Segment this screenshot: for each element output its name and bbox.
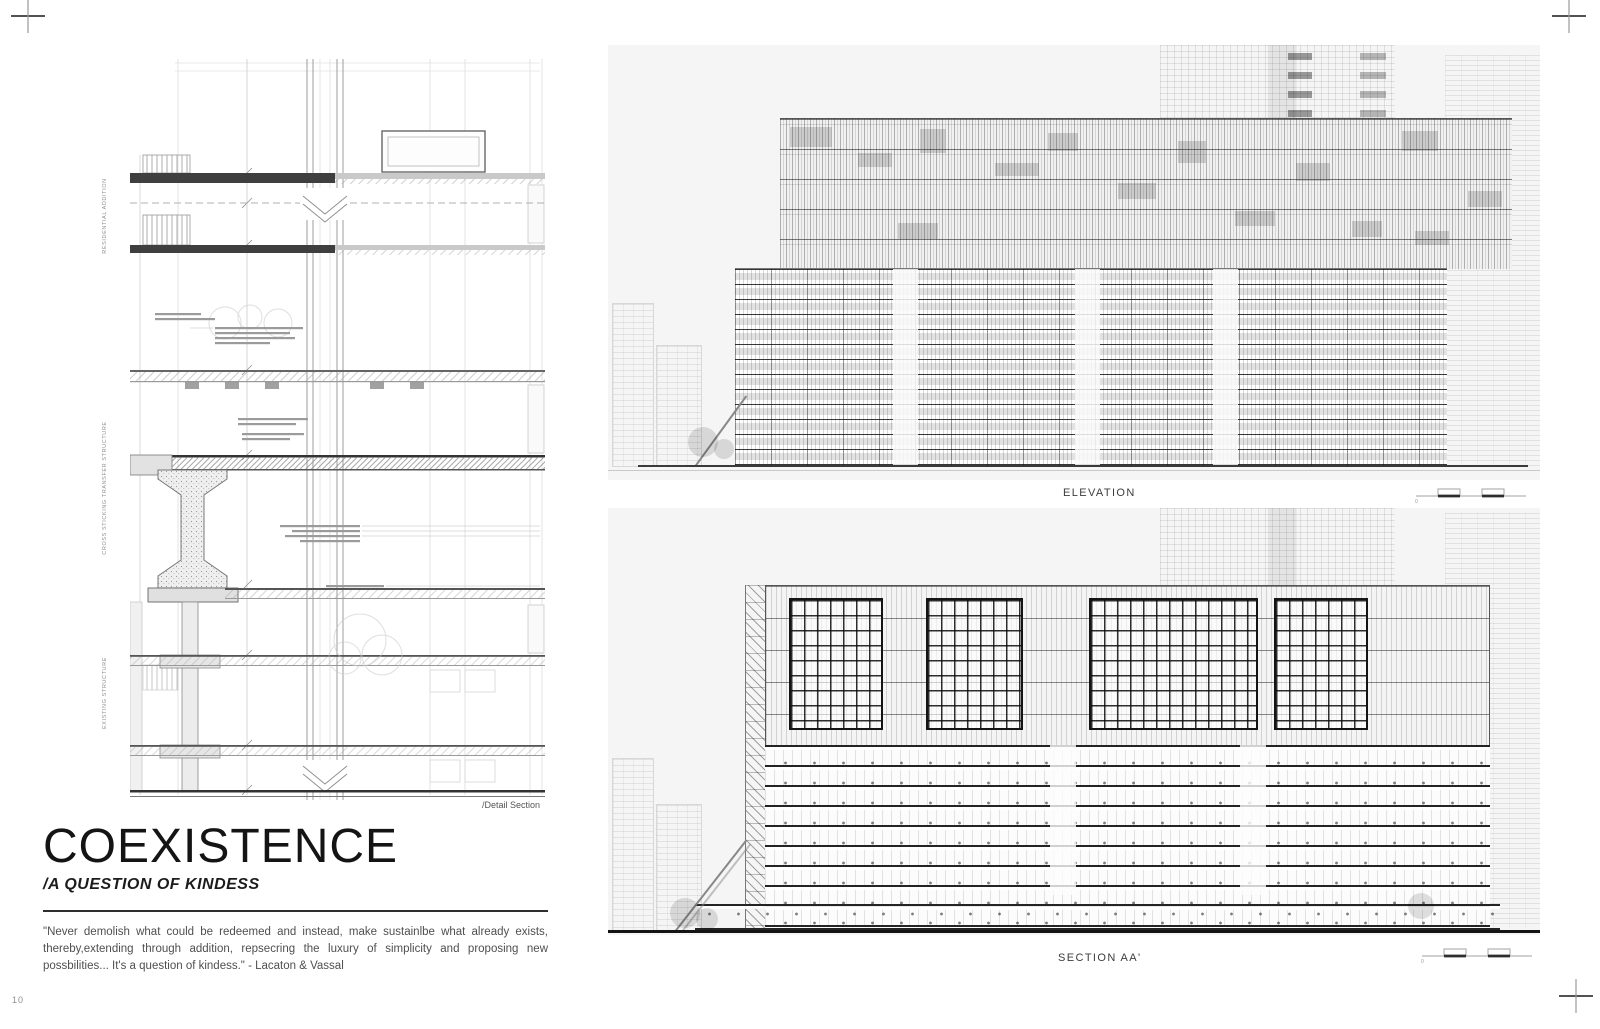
ground-line bbox=[638, 465, 1528, 467]
section-window-grid bbox=[789, 598, 883, 730]
section-addition-mass bbox=[765, 585, 1490, 745]
title-block: COEXISTENCE /A QUESTION OF KINDESS "Neve… bbox=[43, 822, 548, 974]
crop-mark-icon bbox=[1552, 0, 1586, 33]
elevation-void bbox=[893, 269, 918, 466]
section-stair-core bbox=[745, 585, 767, 930]
detail-section-caption: /Detail Section bbox=[450, 800, 540, 810]
portfolio-page: 10 RESIDENTIAL ADDITION CROSS STICKING T… bbox=[0, 0, 1600, 1029]
title-divider bbox=[43, 910, 548, 912]
tree-sketch bbox=[688, 427, 718, 457]
side-label-existing-structure: EXISTING STRUCTURE bbox=[102, 613, 108, 773]
elevation-void bbox=[1213, 269, 1238, 466]
elevation-caption: ELEVATION bbox=[1063, 487, 1136, 499]
scale-zero-label: 0 bbox=[1415, 499, 1418, 504]
scale-bar-icon: 0 bbox=[1412, 482, 1542, 504]
section-void bbox=[1240, 745, 1266, 895]
tree-sketch bbox=[696, 908, 718, 930]
detail-section-linework bbox=[130, 55, 545, 810]
scale-zero-label: 0 bbox=[1421, 959, 1424, 964]
elevation-panel bbox=[608, 45, 1540, 480]
tree-sketch bbox=[714, 439, 734, 459]
tree-sketch bbox=[1408, 893, 1434, 919]
section-basement bbox=[695, 904, 1500, 930]
page-title: COEXISTENCE bbox=[43, 822, 548, 872]
quote-text: "Never demolish what could be redeemed a… bbox=[43, 924, 548, 974]
elevation-addition-mass bbox=[780, 118, 1512, 269]
crop-mark-icon bbox=[1559, 979, 1593, 1013]
section-window-grid bbox=[926, 598, 1023, 730]
section-window-grid bbox=[1089, 598, 1258, 730]
elevation-void bbox=[1075, 269, 1100, 466]
page-number: 10 bbox=[12, 995, 24, 1005]
ground-line bbox=[608, 930, 1540, 933]
section-void bbox=[1050, 745, 1076, 895]
crop-mark-icon bbox=[11, 0, 45, 33]
context-left-building bbox=[612, 303, 654, 467]
elevation-existing-mass bbox=[735, 268, 1447, 467]
side-label-transfer-structure: CROSS STICKING TRANSFER STRUCTURE bbox=[102, 388, 108, 588]
tree-sketch bbox=[670, 898, 700, 928]
scale-bar-icon: 0 bbox=[1418, 942, 1548, 964]
side-label-residential-addition: RESIDENTIAL ADDITION bbox=[102, 136, 108, 296]
page-subtitle: /A QUESTION OF KINDESS bbox=[43, 876, 548, 894]
section-caption: SECTION AA' bbox=[1058, 952, 1142, 964]
context-tower bbox=[1160, 508, 1395, 593]
section-panel bbox=[608, 508, 1540, 935]
detail-section-drawing bbox=[130, 55, 545, 810]
section-window-grid bbox=[1274, 598, 1368, 730]
context-left-building bbox=[612, 758, 654, 932]
ground-line-light bbox=[608, 470, 1540, 471]
